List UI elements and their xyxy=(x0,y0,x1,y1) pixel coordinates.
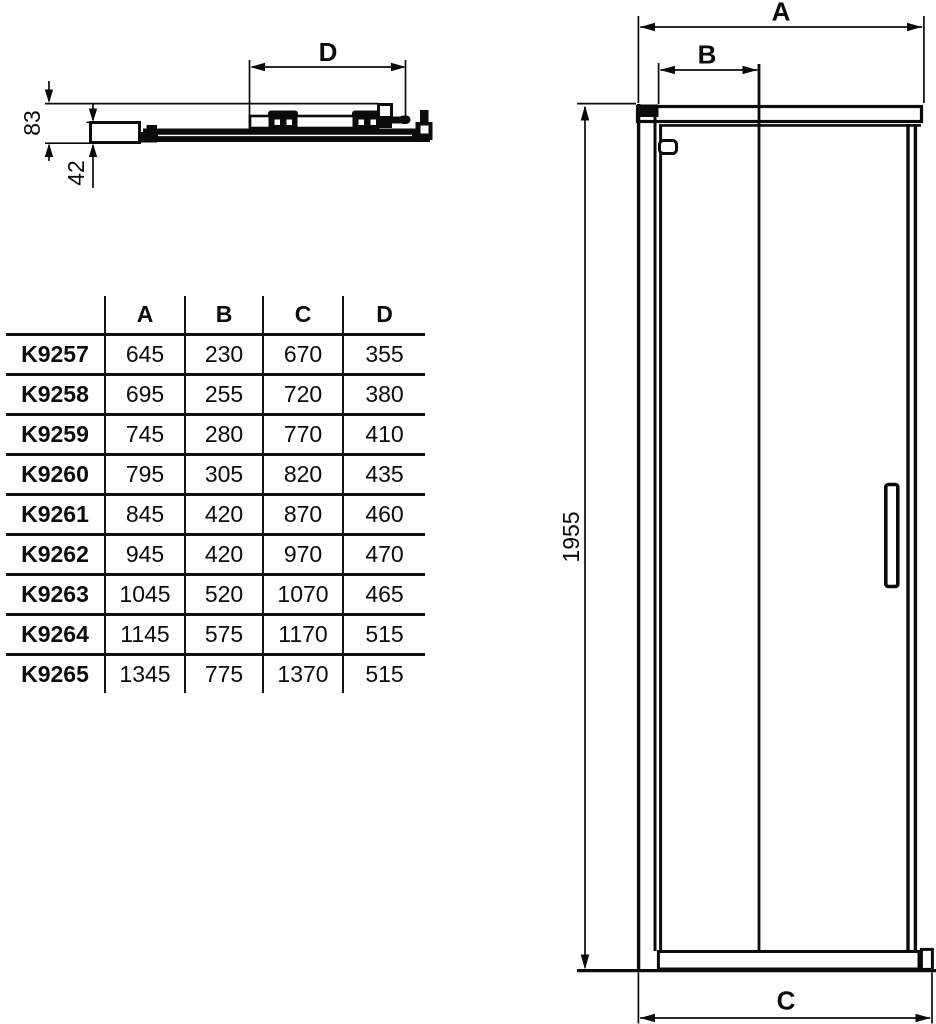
value-cell: 465 xyxy=(343,575,425,615)
column-header-d: D xyxy=(343,296,425,335)
value-cell: 380 xyxy=(343,375,425,415)
dim-c-label: C xyxy=(777,986,796,1016)
value-cell: 775 xyxy=(185,655,263,694)
wall-profile-section xyxy=(91,123,140,143)
value-cell: 520 xyxy=(185,575,263,615)
table-row: K9264 1145 575 1170 515 xyxy=(6,615,425,655)
dim-height-label: 1955 xyxy=(558,511,584,562)
table-row: K9259 745 280 770 410 xyxy=(6,415,425,455)
column-header-c: C xyxy=(263,296,343,335)
model-cell: K9260 xyxy=(6,455,105,495)
table-header-row: A B C D xyxy=(6,296,425,335)
dimension-42 xyxy=(87,104,108,188)
value-cell: 820 xyxy=(263,455,343,495)
dimension-height xyxy=(577,104,636,970)
value-cell: 870 xyxy=(263,495,343,535)
value-cell: 795 xyxy=(105,455,185,495)
value-cell: 420 xyxy=(185,495,263,535)
column-header-a: A xyxy=(105,296,185,335)
head-rail xyxy=(637,105,922,126)
value-cell: 410 xyxy=(343,415,425,455)
value-cell: 230 xyxy=(185,335,263,375)
dim-a-label: A xyxy=(772,0,791,27)
model-cell: K9263 xyxy=(6,575,105,615)
bottom-rail xyxy=(658,949,932,969)
model-cell: K9257 xyxy=(6,335,105,375)
table-row: K9260 795 305 820 435 xyxy=(6,455,425,495)
value-cell: 575 xyxy=(185,615,263,655)
value-cell: 1370 xyxy=(263,655,343,694)
value-cell: 420 xyxy=(185,535,263,575)
value-cell: 1345 xyxy=(105,655,185,694)
table-row: K9265 1345 775 1370 515 xyxy=(6,655,425,694)
model-cell: K9261 xyxy=(6,495,105,535)
value-cell: 305 xyxy=(185,455,263,495)
dim-d-label: D xyxy=(319,37,338,67)
roller-carriage-left xyxy=(268,111,298,128)
table-row: K9261 845 420 870 460 xyxy=(6,495,425,535)
value-cell: 770 xyxy=(263,415,343,455)
value-cell: 945 xyxy=(105,535,185,575)
value-cell: 645 xyxy=(105,335,185,375)
model-cell: K9265 xyxy=(6,655,105,694)
model-cell: K9258 xyxy=(6,375,105,415)
model-cell: K9264 xyxy=(6,615,105,655)
value-cell: 355 xyxy=(343,335,425,375)
value-cell: 460 xyxy=(343,495,425,535)
dim-42-label: 42 xyxy=(63,160,89,186)
section-view-drawing: D 83 42 xyxy=(0,0,460,230)
model-cell: K9262 xyxy=(6,535,105,575)
corner-cell xyxy=(6,296,105,335)
value-cell: 720 xyxy=(263,375,343,415)
table-row: K9258 695 255 720 380 xyxy=(6,375,425,415)
door-handle xyxy=(886,485,898,587)
size-table-container: A B C D K9257 645 230 670 355 K9258 695 xyxy=(6,296,425,693)
elevation-view-drawing: A B 1955 xyxy=(555,0,936,1024)
fixed-panel-edge xyxy=(908,124,915,951)
shower-door-spec-sheet: D 83 42 xyxy=(0,0,936,1024)
dim-b-label: B xyxy=(698,40,717,70)
table-row: K9263 1045 520 1070 465 xyxy=(6,575,425,615)
table-row: K9262 945 420 970 470 xyxy=(6,535,425,575)
end-stop xyxy=(416,110,433,140)
value-cell: 1070 xyxy=(263,575,343,615)
dimension-a xyxy=(638,16,924,103)
value-cell: 695 xyxy=(105,375,185,415)
value-cell: 845 xyxy=(105,495,185,535)
value-cell: 435 xyxy=(343,455,425,495)
value-cell: 280 xyxy=(185,415,263,455)
model-cell: K9259 xyxy=(6,415,105,455)
value-cell: 745 xyxy=(105,415,185,455)
left-wall-profile xyxy=(639,104,661,970)
value-cell: 470 xyxy=(343,535,425,575)
value-cell: 515 xyxy=(343,615,425,655)
dim-83-label: 83 xyxy=(19,110,45,136)
value-cell: 1045 xyxy=(105,575,185,615)
value-cell: 1170 xyxy=(263,615,343,655)
value-cell: 255 xyxy=(185,375,263,415)
column-header-b: B xyxy=(185,296,263,335)
value-cell: 670 xyxy=(263,335,343,375)
value-cell: 970 xyxy=(263,535,343,575)
size-table: A B C D K9257 645 230 670 355 K9258 695 xyxy=(6,296,425,693)
door-knob xyxy=(660,141,677,154)
value-cell: 515 xyxy=(343,655,425,694)
value-cell: 1145 xyxy=(105,615,185,655)
table-row: K9257 645 230 670 355 xyxy=(6,335,425,375)
